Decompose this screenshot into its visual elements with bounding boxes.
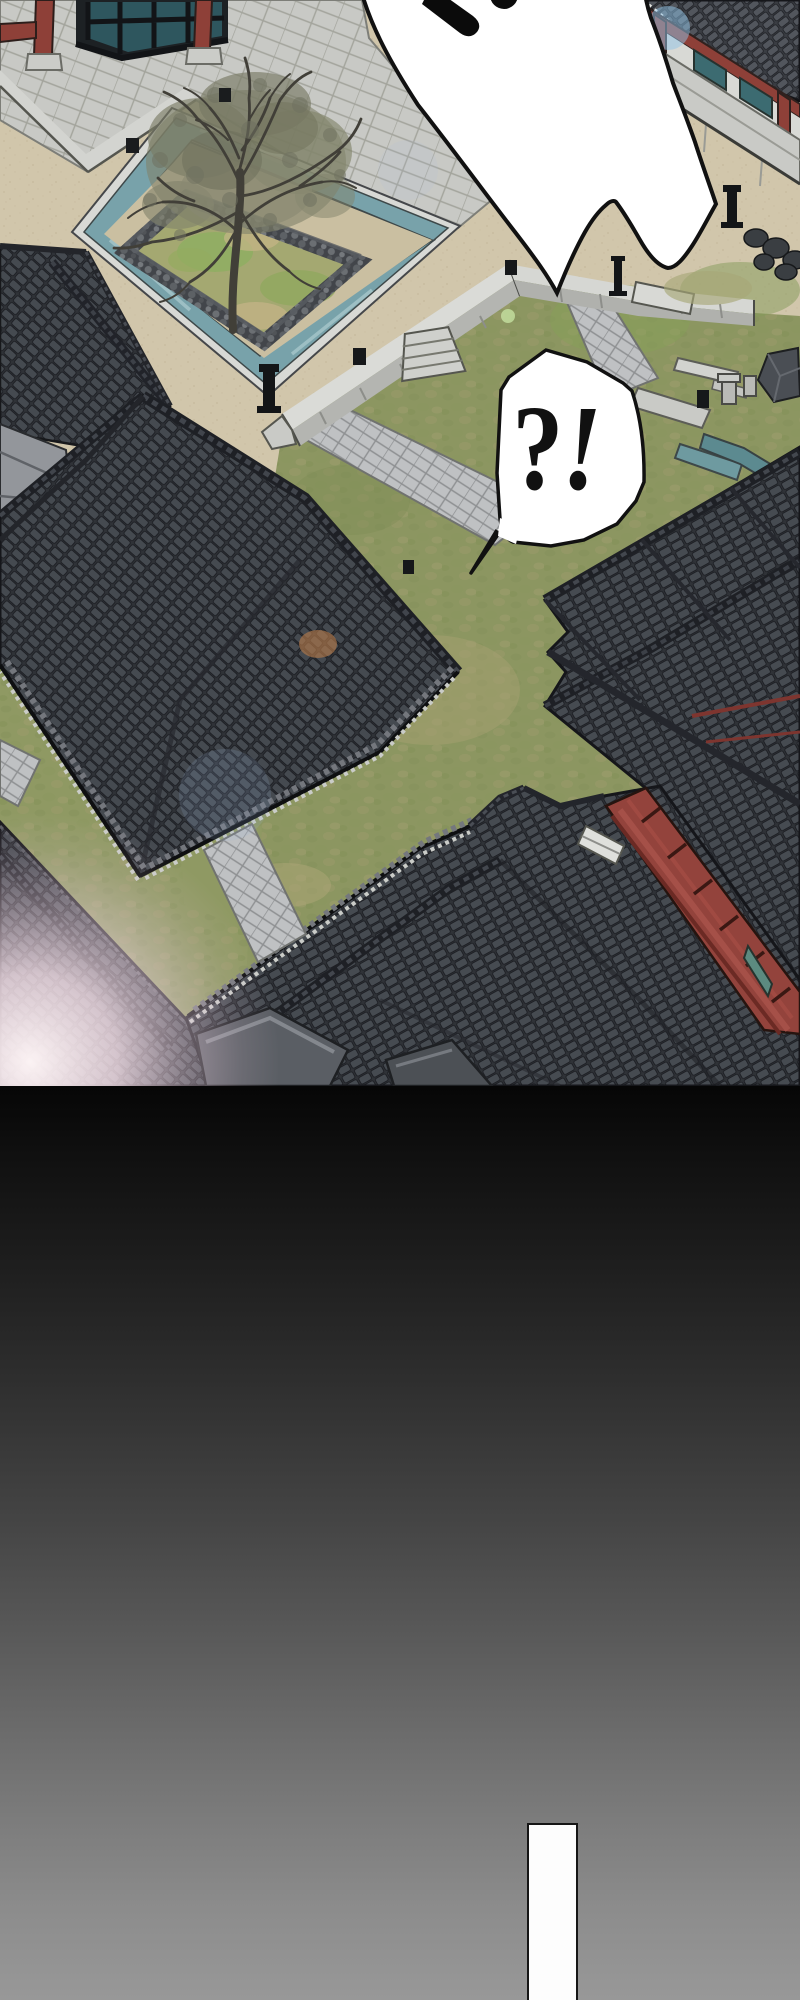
svg-text:?!: ?! [512, 382, 601, 516]
